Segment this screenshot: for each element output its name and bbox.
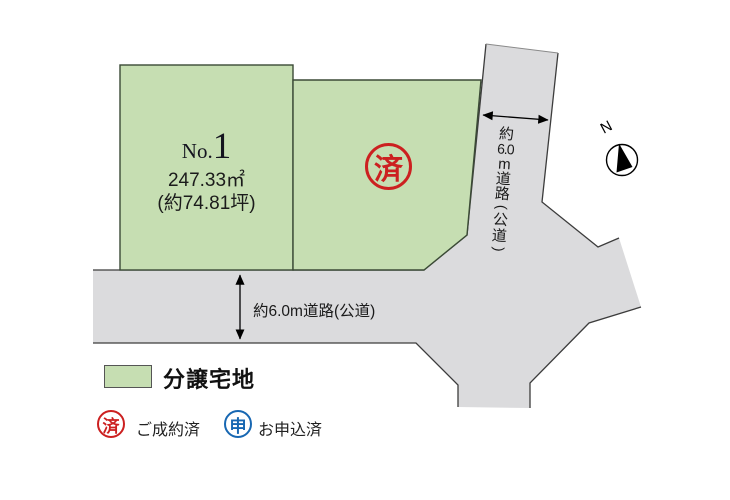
legend-sold-stamp-char: 済 bbox=[103, 412, 120, 437]
plot1-number: No.1 bbox=[120, 126, 293, 167]
legend-applied-label: お申込済 bbox=[258, 416, 322, 440]
sold-stamp-char: 済 bbox=[374, 146, 403, 188]
legend-applied-stamp-char: 申 bbox=[230, 412, 247, 437]
legend-applied-stamp: 申 bbox=[224, 410, 252, 438]
vroad-char: 道 bbox=[491, 228, 507, 244]
plot1-label: No.1 247.33㎡ (約74.81坪) bbox=[120, 126, 293, 214]
plot-map-canvas: No.1 247.33㎡ (約74.81坪) 済 約 6.0 m 道 路 ( 公… bbox=[0, 0, 730, 500]
sold-stamp: 済 bbox=[365, 143, 412, 190]
compass-needle-icon bbox=[617, 144, 633, 173]
legend-sold-stamp: 済 bbox=[97, 410, 125, 438]
legend-lot-swatch bbox=[104, 365, 152, 388]
legend-sold-label: ご成約済 bbox=[136, 416, 200, 440]
legend-lot-label: 分譲宅地 bbox=[163, 362, 255, 394]
plot1-number-prefix: No. bbox=[182, 139, 213, 163]
plot1-area-tsubo: (約74.81坪) bbox=[120, 193, 293, 214]
plot1-area-m2: 247.33㎡ bbox=[120, 170, 293, 191]
horizontal-road-label: 約6.0m道路(公道) bbox=[253, 299, 375, 321]
vroad-char: ( bbox=[496, 205, 507, 210]
plot1-number-value: 1 bbox=[213, 126, 232, 167]
vroad-char: 路 bbox=[494, 186, 510, 202]
vroad-char: ) bbox=[493, 247, 504, 252]
